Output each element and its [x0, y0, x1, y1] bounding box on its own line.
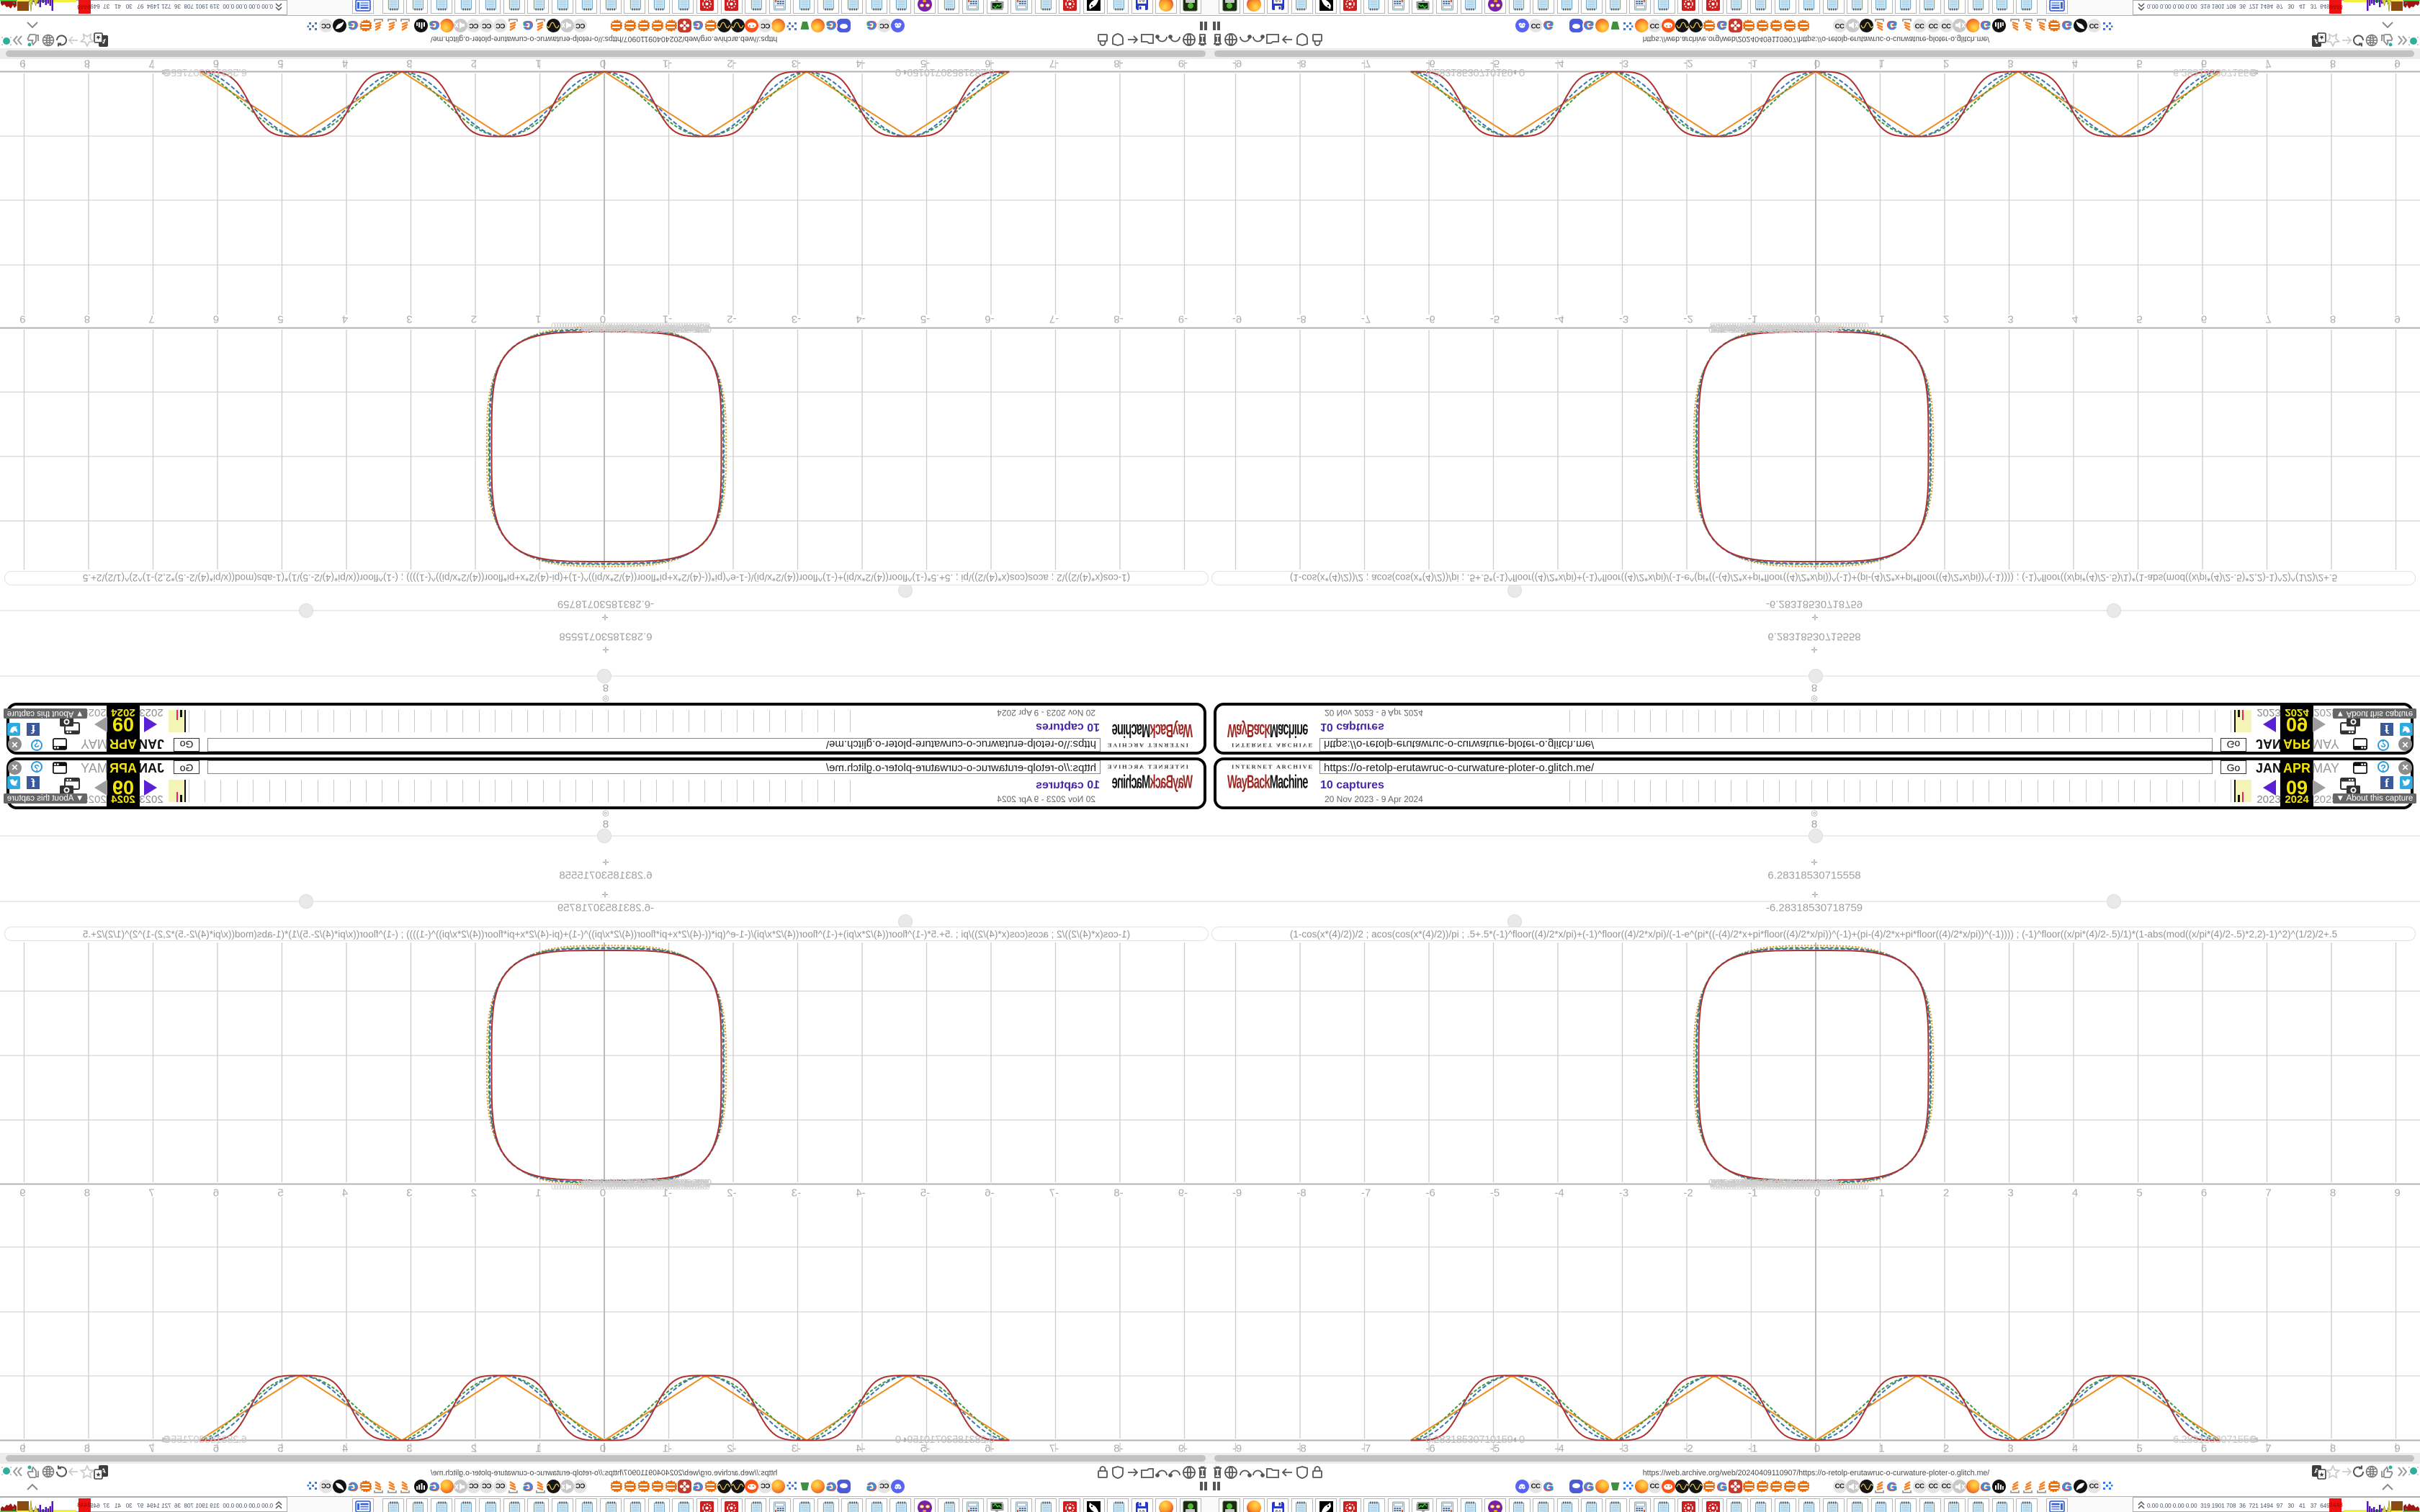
- svg-text:3: 3: [2007, 58, 2013, 70]
- svg-text:-9: -9: [1232, 313, 1242, 325]
- svg-text:8: 8: [2330, 313, 2336, 325]
- svg-text:5: 5: [2136, 313, 2142, 325]
- svg-text:2: 2: [1943, 58, 1949, 70]
- svg-text:64: 64: [1139, 0, 1145, 3]
- svg-text:-7: -7: [1361, 1187, 1371, 1200]
- svg-text:9: 9: [2394, 313, 2400, 325]
- svg-text:9: 9: [2394, 1187, 2400, 1200]
- svg-text:-8: -8: [1296, 58, 1306, 70]
- svg-text:8: 8: [2330, 1187, 2336, 1200]
- svg-text:6: 6: [2201, 1187, 2207, 1200]
- svg-text:-4: -4: [856, 1187, 865, 1200]
- svg-text:-6: -6: [985, 313, 994, 325]
- svg-text:9: 9: [19, 58, 25, 70]
- svg-text:64: 64: [1275, 1510, 1281, 1512]
- svg-text:-6: -6: [1425, 1187, 1435, 1200]
- svg-text:-8: -8: [1113, 313, 1123, 325]
- svg-text:2: 2: [1943, 1187, 1949, 1200]
- svg-text:6: 6: [213, 1187, 219, 1200]
- svg-text:★: ★: [2318, 34, 2324, 41]
- svg-text:4: 4: [342, 1187, 348, 1200]
- svg-text:-7: -7: [1361, 58, 1371, 70]
- svg-text:-2: -2: [1683, 313, 1693, 325]
- svg-text:-9: -9: [1178, 1187, 1188, 1200]
- svg-text:-4: -4: [1554, 313, 1564, 325]
- svg-text:-9: -9: [1178, 58, 1188, 70]
- svg-text:-3: -3: [792, 1187, 801, 1200]
- svg-text:-9: -9: [1232, 1187, 1242, 1200]
- svg-text:3: 3: [2007, 313, 2013, 325]
- svg-text:★: ★: [95, 34, 101, 41]
- svg-text:8: 8: [84, 58, 90, 70]
- svg-text:4: 4: [342, 313, 348, 325]
- svg-text:-8: -8: [1113, 1187, 1123, 1200]
- svg-text:6: 6: [2201, 313, 2207, 325]
- svg-text:-2: -2: [727, 313, 736, 325]
- svg-text:-3: -3: [1619, 1187, 1628, 1200]
- svg-text:1: 1: [535, 58, 541, 70]
- svg-text:-1: -1: [1748, 58, 1757, 70]
- svg-text:8: 8: [2330, 58, 2336, 70]
- svg-text:3: 3: [2007, 1187, 2013, 1200]
- svg-text:3: 3: [406, 313, 412, 325]
- svg-text:-3: -3: [1619, 313, 1628, 325]
- svg-text:-7: -7: [1361, 313, 1371, 325]
- svg-text:-2: -2: [727, 58, 736, 70]
- svg-text:6: 6: [213, 313, 219, 325]
- svg-text:-4: -4: [856, 313, 865, 325]
- svg-text:7: 7: [148, 313, 154, 325]
- svg-text:4: 4: [2072, 1187, 2078, 1200]
- svg-text:0: 0: [600, 58, 606, 70]
- svg-text:-8: -8: [1113, 58, 1123, 70]
- svg-text:8: 8: [84, 1187, 90, 1200]
- svg-text:8: 8: [84, 313, 90, 325]
- svg-text:4: 4: [342, 58, 348, 70]
- svg-text:-7: -7: [1049, 1187, 1059, 1200]
- svg-text:9: 9: [19, 1187, 25, 1200]
- svg-text:-3: -3: [792, 313, 801, 325]
- svg-text:-3: -3: [1619, 58, 1628, 70]
- svg-text:4: 4: [2072, 58, 2078, 70]
- svg-text:7: 7: [148, 1187, 154, 1200]
- svg-text:2: 2: [1943, 313, 1949, 325]
- svg-text:-8: -8: [1296, 1187, 1306, 1200]
- svg-text:★: ★: [95, 1471, 101, 1478]
- svg-text:64: 64: [1275, 0, 1281, 3]
- svg-text:-4: -4: [1554, 1187, 1564, 1200]
- svg-text:-9: -9: [1232, 58, 1242, 70]
- svg-text:2: 2: [471, 313, 477, 325]
- svg-text:-2: -2: [727, 1187, 736, 1200]
- svg-text:5: 5: [277, 313, 283, 325]
- svg-text:-5: -5: [920, 1187, 930, 1200]
- svg-text:-6: -6: [1425, 313, 1435, 325]
- svg-text:-3: -3: [792, 58, 801, 70]
- svg-text:64: 64: [1139, 1510, 1145, 1512]
- svg-text:7: 7: [2265, 58, 2271, 70]
- svg-text:4: 4: [2072, 313, 2078, 325]
- svg-text:2: 2: [471, 58, 477, 70]
- svg-text:2: 2: [471, 1187, 477, 1200]
- svg-text:5: 5: [277, 1187, 283, 1200]
- svg-text:7: 7: [2265, 1187, 2271, 1200]
- svg-text:-1: -1: [663, 58, 672, 70]
- svg-text:-8: -8: [1296, 313, 1306, 325]
- svg-text:5: 5: [277, 58, 283, 70]
- svg-text:3: 3: [406, 58, 412, 70]
- svg-text:-5: -5: [1490, 313, 1500, 325]
- svg-text:-4: -4: [1554, 58, 1564, 70]
- svg-text:-7: -7: [1049, 58, 1059, 70]
- svg-text:-2: -2: [1683, 58, 1693, 70]
- svg-text:7: 7: [2265, 313, 2271, 325]
- svg-text:★: ★: [2318, 1471, 2324, 1478]
- svg-text:-7: -7: [1049, 313, 1059, 325]
- svg-text:-5: -5: [1490, 1187, 1500, 1200]
- svg-text:9: 9: [2394, 58, 2400, 70]
- svg-text:-4: -4: [856, 58, 865, 70]
- svg-text:-9: -9: [1178, 313, 1188, 325]
- svg-text:-5: -5: [920, 313, 930, 325]
- svg-text:-2: -2: [1683, 1187, 1693, 1200]
- svg-text:0: 0: [1814, 58, 1820, 70]
- svg-text:1: 1: [1878, 58, 1884, 70]
- svg-text:5: 5: [2136, 58, 2142, 70]
- svg-text:9: 9: [19, 313, 25, 325]
- svg-text:5: 5: [2136, 1187, 2142, 1200]
- svg-text:7: 7: [148, 58, 154, 70]
- svg-text:3: 3: [406, 1187, 412, 1200]
- svg-text:-6: -6: [985, 1187, 994, 1200]
